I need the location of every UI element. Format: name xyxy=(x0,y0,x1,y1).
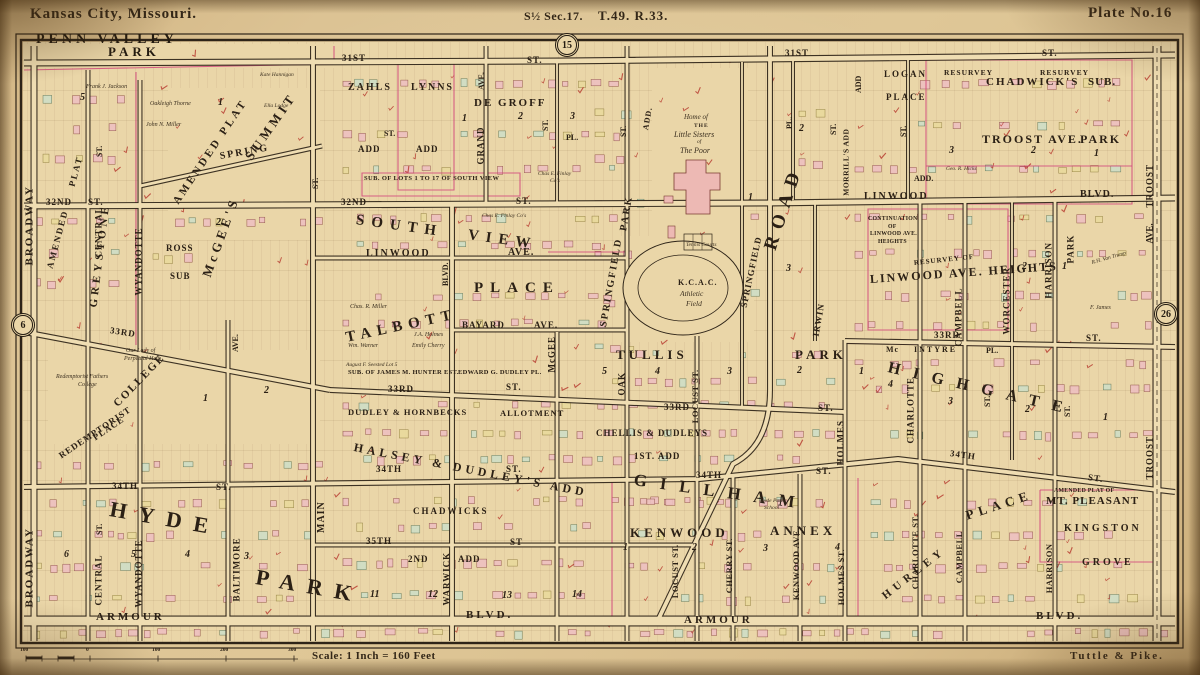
plate-number: Plate No.16 xyxy=(1088,5,1172,22)
scale-label: Scale: 1 Inch = 160 Feet xyxy=(312,650,436,662)
plate-ref-circle-top: 15 xyxy=(555,33,579,57)
section-label: S½ Sec.17. xyxy=(524,9,583,24)
atlas-plate-page: { "header": {"city": "Kansas City, Misso… xyxy=(0,0,1200,675)
plate-ref-circle-west: 6 xyxy=(11,313,35,337)
township-range-label: T.49. R.33. xyxy=(598,8,668,24)
map-canvas xyxy=(0,0,1200,675)
publisher-credit: Tuttle & Pike. xyxy=(1070,650,1164,662)
plate-ref-circle-east: 26 xyxy=(1154,302,1178,326)
map-title: Kansas City, Missouri. xyxy=(30,6,197,23)
